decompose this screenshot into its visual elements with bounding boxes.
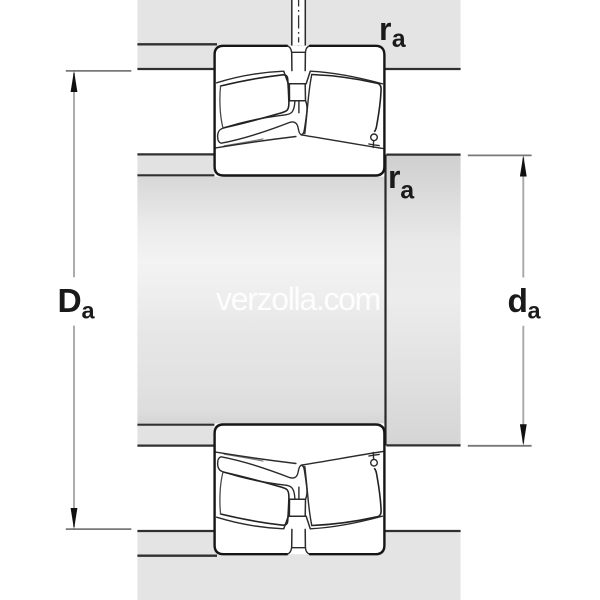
svg-text:a: a — [528, 298, 542, 324]
svg-text:a: a — [400, 177, 415, 205]
svg-text:a: a — [82, 298, 96, 324]
svg-text:D: D — [58, 283, 82, 320]
svg-text:d: d — [508, 283, 528, 320]
svg-text:r: r — [388, 159, 400, 195]
svg-text:a: a — [392, 25, 407, 53]
svg-text:r: r — [379, 11, 391, 47]
svg-text:verzolla.com: verzolla.com — [216, 281, 380, 317]
